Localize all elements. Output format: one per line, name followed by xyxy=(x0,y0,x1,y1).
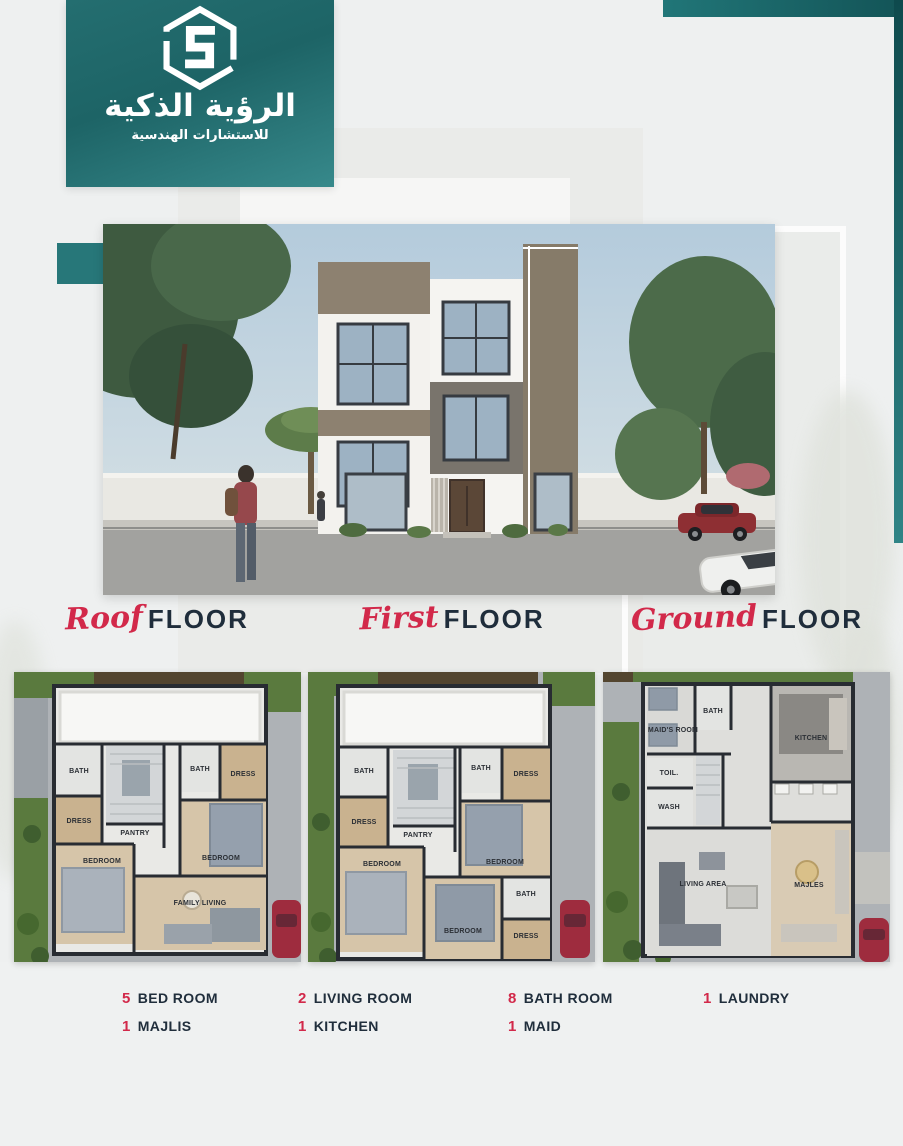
first-floor-label: First FLOOR xyxy=(359,604,544,634)
stat-kitchen-label: KITCHEN xyxy=(314,1018,379,1034)
ground-floor-word: FLOOR xyxy=(762,606,863,632)
svg-text:DRESS: DRESS xyxy=(513,933,538,940)
villa-render-photo xyxy=(103,224,775,595)
stat-kitchen-count: 1 xyxy=(298,1018,307,1035)
stat-laundry: 1 LAUNDRY xyxy=(703,990,789,1007)
svg-text:MAID'S ROOM: MAID'S ROOM xyxy=(648,727,698,734)
svg-text:BATH: BATH xyxy=(471,765,491,772)
svg-text:PANTRY: PANTRY xyxy=(120,830,149,837)
svg-text:BEDROOM: BEDROOM xyxy=(444,928,482,935)
teal-right-strip xyxy=(894,0,903,543)
stat-laundry-label: LAUNDRY xyxy=(719,990,790,1006)
svg-text:BATH: BATH xyxy=(190,766,210,773)
ground-floor-plan: MAID'S ROOM BATH KITCHEN TOIL. WASH LIVI… xyxy=(603,672,890,962)
stat-maid: 1 MAID xyxy=(508,1018,561,1035)
parked-car xyxy=(560,900,590,958)
first-floor-plan: BATH DRESS BATH DRESS PANTRY BEDROOM BED… xyxy=(308,672,595,962)
teal-top-band xyxy=(663,0,903,17)
svg-text:PANTRY: PANTRY xyxy=(403,832,432,839)
roof-floor-plan: BATH DRESS BATH DRESS PANTRY BEDROOM BED… xyxy=(14,672,301,962)
first-script-word: First xyxy=(359,603,439,636)
ground-floor-label: Ground FLOOR xyxy=(631,604,863,634)
first-floor-word: FLOOR xyxy=(444,606,545,632)
company-logo-box: الرؤية الذكية للاستشارات الهندسية xyxy=(66,0,334,187)
ground-script-word: Ground xyxy=(630,602,757,636)
svg-text:BATH: BATH xyxy=(354,768,374,775)
svg-text:BEDROOM: BEDROOM xyxy=(363,861,401,868)
stat-bathrooms-label: BATH ROOM xyxy=(524,990,613,1006)
walls-and-rooms xyxy=(643,684,853,956)
svg-text:BATH: BATH xyxy=(516,891,536,898)
stat-majlis: 1 MAJLIS xyxy=(122,1018,192,1035)
svg-text:DRESS: DRESS xyxy=(66,818,91,825)
stat-maid-label: MAID xyxy=(524,1018,561,1034)
svg-text:FAMILY LIVING: FAMILY LIVING xyxy=(174,900,227,907)
stat-bathrooms: 8 BATH ROOM xyxy=(508,990,613,1007)
stat-living-rooms-count: 2 xyxy=(298,990,307,1007)
svg-text:TOIL.: TOIL. xyxy=(660,770,679,777)
svg-text:BATH: BATH xyxy=(703,708,723,715)
roof-script-word: Roof xyxy=(65,603,144,636)
roof-floor-word: FLOOR xyxy=(148,606,249,632)
stat-maid-count: 1 xyxy=(508,1018,517,1035)
company-tagline-arabic: للاستشارات الهندسية xyxy=(131,128,268,143)
company-name-arabic: الرؤية الذكية xyxy=(104,90,296,123)
stat-kitchen: 1 KITCHEN xyxy=(298,1018,379,1035)
villa-building xyxy=(318,244,578,538)
svg-text:MAJLES: MAJLES xyxy=(794,882,824,889)
brochure-page: الرؤية الذكية للاستشارات الهندسية xyxy=(0,0,903,1146)
svg-text:WASH: WASH xyxy=(658,804,680,811)
svg-text:DRESS: DRESS xyxy=(513,771,538,778)
svg-text:DRESS: DRESS xyxy=(230,771,255,778)
svg-text:BEDROOM: BEDROOM xyxy=(202,855,240,862)
parked-car xyxy=(859,918,889,962)
teal-accent-square xyxy=(57,243,108,284)
stat-laundry-count: 1 xyxy=(703,990,712,1007)
svg-text:DRESS: DRESS xyxy=(351,819,376,826)
svg-text:KITCHEN: KITCHEN xyxy=(795,735,828,742)
stat-bedrooms-label: BED ROOM xyxy=(138,990,218,1006)
stat-majlis-count: 1 xyxy=(122,1018,131,1035)
svg-text:LIVING AREA: LIVING AREA xyxy=(679,881,726,888)
stat-bedrooms: 5 BED ROOM xyxy=(122,990,218,1007)
hexagon-s-logo-icon xyxy=(156,4,244,92)
faded-tree-right xyxy=(800,390,895,690)
stat-bedrooms-count: 5 xyxy=(122,990,131,1007)
parked-car xyxy=(272,900,301,958)
roof-floor-label: Roof FLOOR xyxy=(65,604,249,634)
stat-living-rooms: 2 LIVING ROOM xyxy=(298,990,412,1007)
stat-living-rooms-label: LIVING ROOM xyxy=(314,990,413,1006)
stat-bathrooms-count: 8 xyxy=(508,990,517,1007)
svg-text:BEDROOM: BEDROOM xyxy=(83,858,121,865)
svg-text:BATH: BATH xyxy=(69,768,89,775)
svg-text:BEDROOM: BEDROOM xyxy=(486,859,524,866)
stat-majlis-label: MAJLIS xyxy=(138,1018,192,1034)
